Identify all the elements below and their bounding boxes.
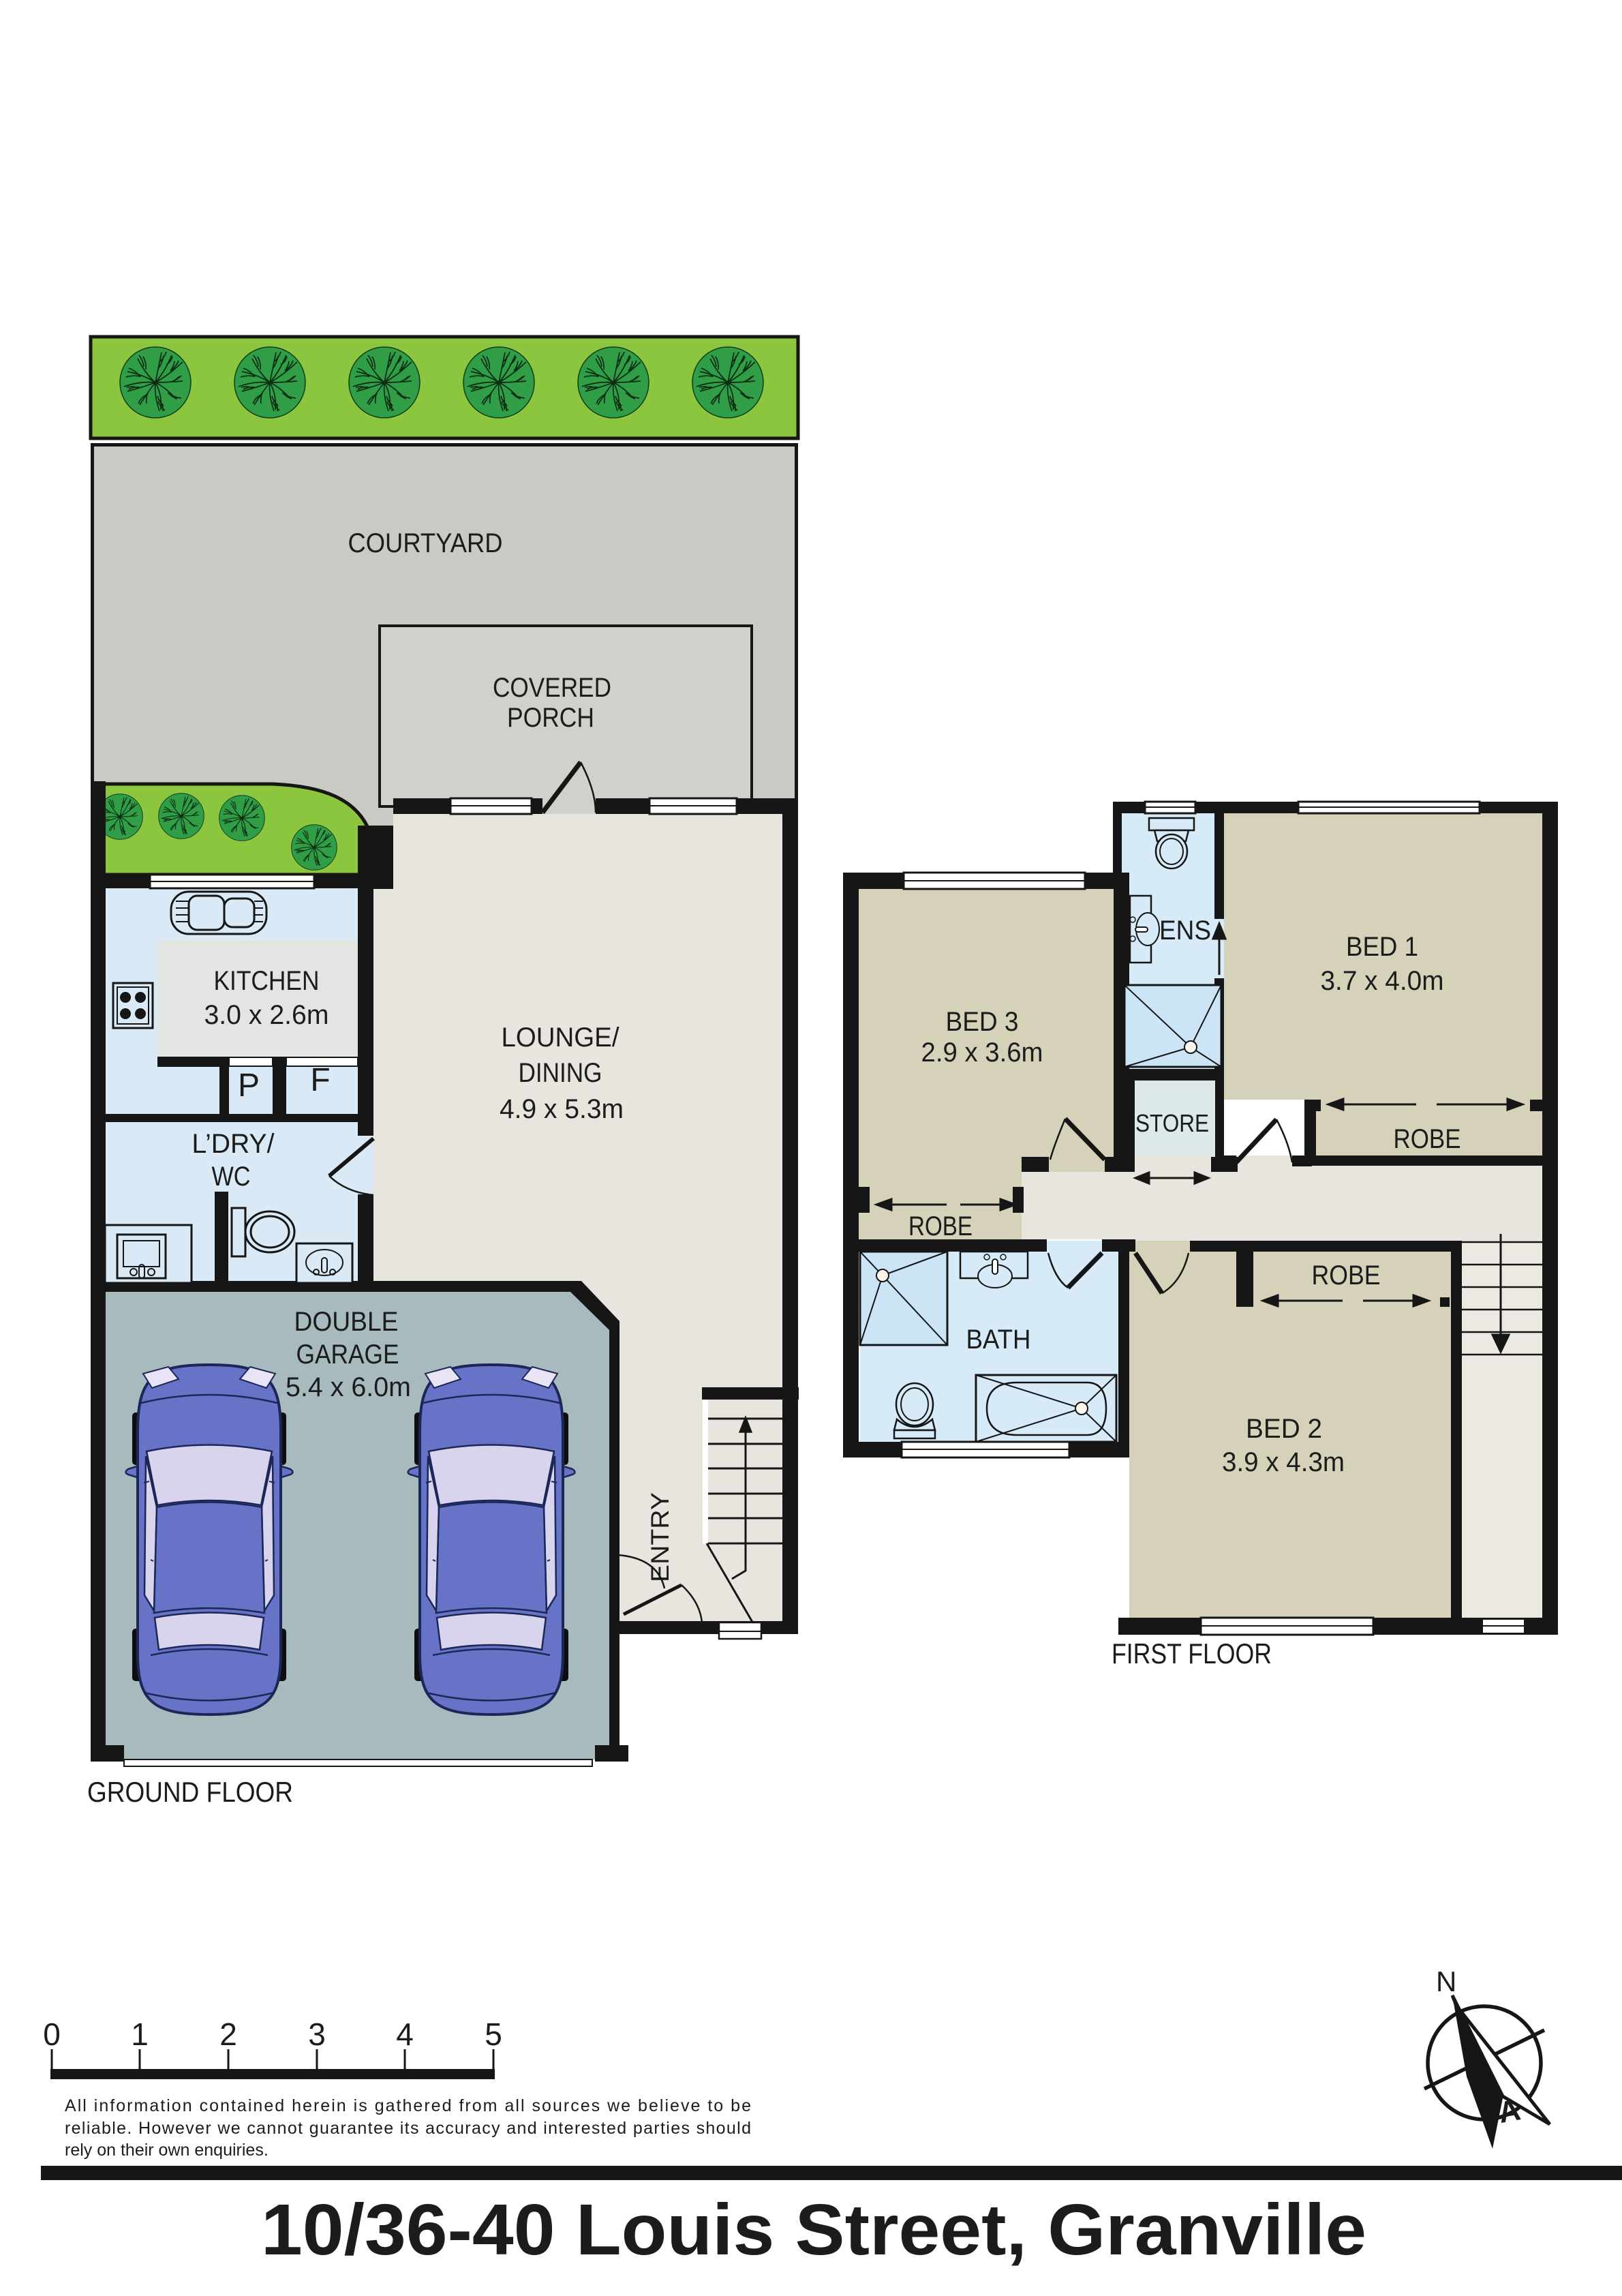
svg-text:KITCHEN: KITCHEN <box>214 966 320 996</box>
svg-text:rely on their own enquiries.: rely on their own enquiries. <box>65 2141 269 2160</box>
svg-text:5.4 x 6.0m: 5.4 x 6.0m <box>286 1372 411 1402</box>
svg-text:BED 3: BED 3 <box>946 1007 1019 1037</box>
svg-text:4.9 x 5.3m: 4.9 x 5.3m <box>500 1094 624 1124</box>
svg-text:PORCH: PORCH <box>507 703 594 733</box>
svg-text:3.7 x 4.0m: 3.7 x 4.0m <box>1321 966 1444 996</box>
svg-text:ROBE: ROBE <box>1394 1124 1461 1154</box>
svg-text:BATH: BATH <box>966 1325 1031 1355</box>
svg-text:COVERED: COVERED <box>493 673 611 703</box>
svg-text:FIRST FLOOR: FIRST FLOOR <box>1112 1637 1272 1670</box>
svg-text:4: 4 <box>396 2016 414 2052</box>
svg-text:DOUBLE: DOUBLE <box>294 1307 399 1337</box>
svg-text:L’DRY/: L’DRY/ <box>192 1129 275 1159</box>
svg-text:5: 5 <box>485 2016 502 2052</box>
svg-text:STORE: STORE <box>1135 1109 1209 1137</box>
svg-text:N: N <box>1436 1965 1456 1997</box>
svg-text:2: 2 <box>219 2016 237 2052</box>
svg-text:3: 3 <box>308 2016 326 2052</box>
svg-text:All information contained here: All information contained herein is gath… <box>65 2096 751 2115</box>
svg-text:LOUNGE/: LOUNGE/ <box>502 1023 620 1053</box>
svg-text:GROUND FLOOR: GROUND FLOOR <box>87 1776 293 1808</box>
svg-text:COURTYARD: COURTYARD <box>348 528 503 558</box>
svg-text:ROBE: ROBE <box>908 1211 973 1241</box>
svg-text:reliable. However we cannot gu: reliable. However we cannot guarantee it… <box>65 2119 751 2138</box>
svg-text:10/36-40 Louis Street, Granvil: 10/36-40 Louis Street, Granville <box>261 2190 1366 2270</box>
svg-text:3.9 x 4.3m: 3.9 x 4.3m <box>1222 1447 1345 1477</box>
svg-text:GARAGE: GARAGE <box>296 1340 399 1370</box>
svg-text:1: 1 <box>131 2016 149 2052</box>
svg-text:F: F <box>310 1062 330 1098</box>
svg-text:ENS: ENS <box>1159 916 1211 946</box>
svg-text:2.9 x 3.6m: 2.9 x 3.6m <box>921 1038 1043 1068</box>
svg-text:P: P <box>238 1068 260 1104</box>
svg-text:ROBE: ROBE <box>1312 1260 1381 1290</box>
svg-text:3.0 x 2.6m: 3.0 x 2.6m <box>204 1000 329 1030</box>
svg-text:ENTRY: ENTRY <box>646 1492 674 1582</box>
svg-text:WC: WC <box>212 1162 251 1192</box>
svg-text:0: 0 <box>43 2016 61 2052</box>
svg-text:BED 2: BED 2 <box>1246 1414 1322 1444</box>
svg-text:DINING: DINING <box>519 1058 602 1088</box>
svg-text:BED 1: BED 1 <box>1346 932 1418 962</box>
